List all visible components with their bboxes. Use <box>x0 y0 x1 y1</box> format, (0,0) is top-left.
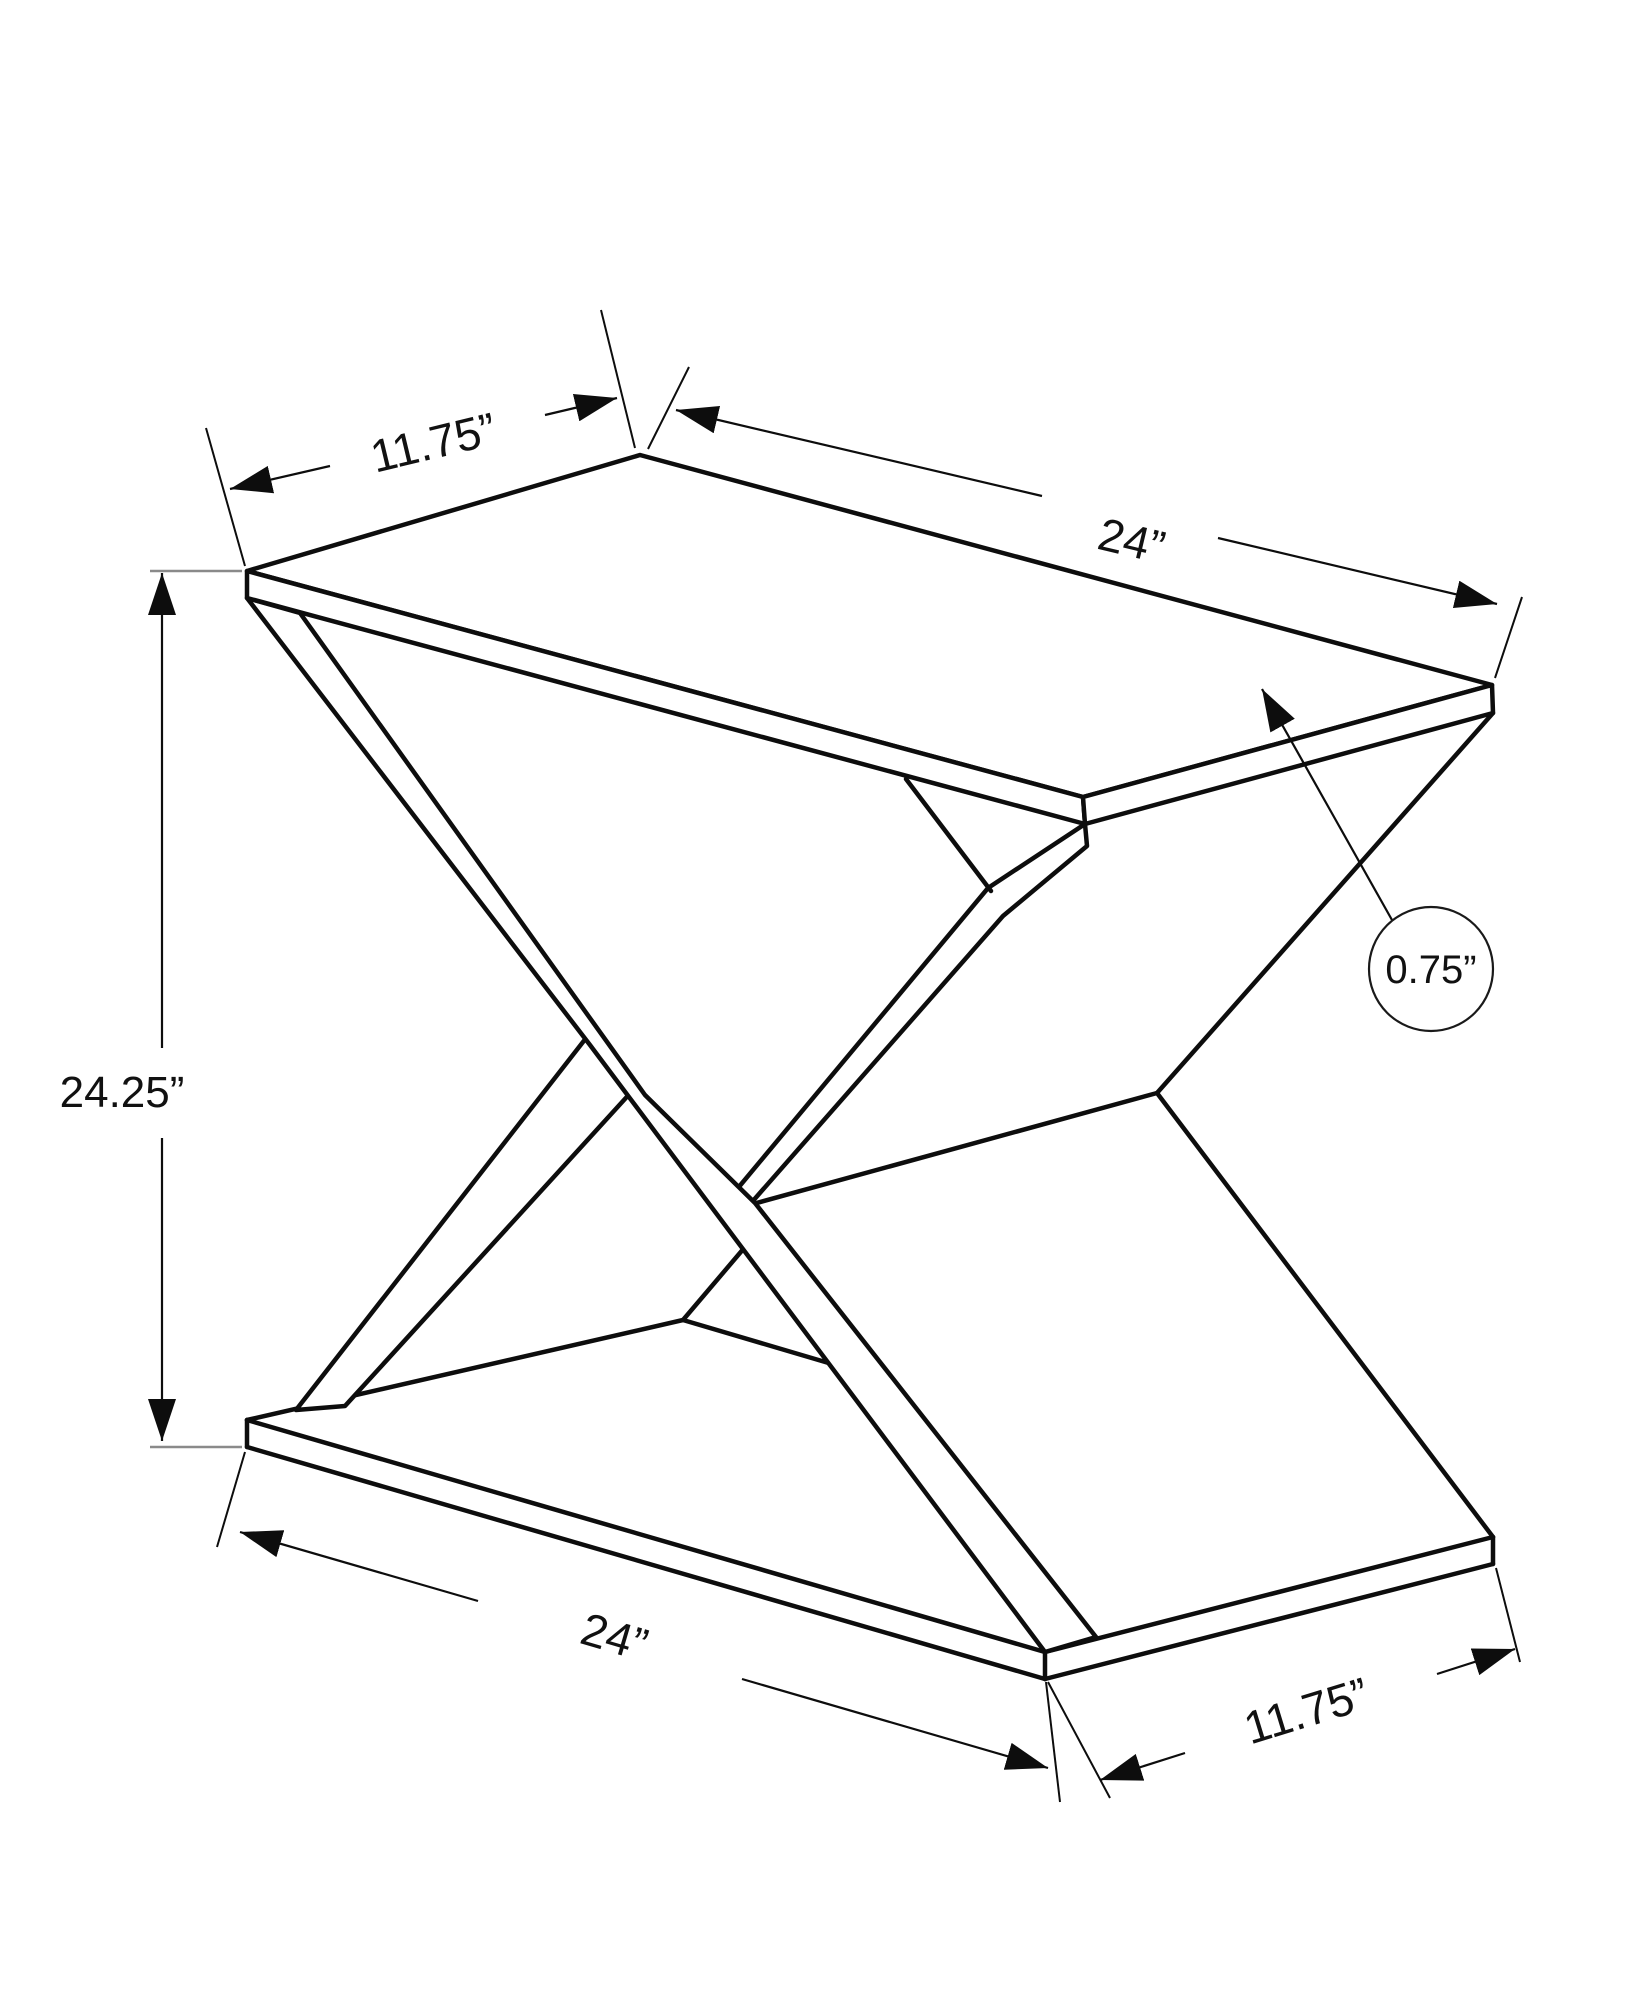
technical-drawing: 24.25” 11.75” 24” 24” 11.75” 0.75” <box>0 0 1648 2000</box>
top-depth-extension-right <box>601 310 635 448</box>
height-label: 24.25” <box>60 1068 185 1117</box>
base-front-right-top-edge <box>1045 1537 1493 1652</box>
bottom-depth-extension-right <box>1496 1568 1520 1662</box>
top-depth-label: 11.75” <box>365 402 501 482</box>
top-depth-dim-right <box>545 398 617 415</box>
base-front-right-bottom-edge <box>1045 1564 1493 1679</box>
thickness-label: 0.75” <box>1385 948 1476 992</box>
cross-leg-back <box>296 779 1087 1410</box>
back-leg-lower-arm <box>296 1033 634 1410</box>
top-width-label: 24” <box>1093 507 1170 573</box>
bottom-width-dim-right <box>742 1679 1048 1768</box>
right-panel-front-edge <box>1157 1093 1493 1537</box>
back-leg-upper-arm <box>738 824 1087 1202</box>
bottom-width-label: 24” <box>575 1602 653 1671</box>
dimension-height: 24.25” <box>60 571 242 1447</box>
bottom-depth-dim-left <box>1100 1753 1185 1780</box>
dimension-bottom-depth: 11.75” <box>1048 1568 1520 1798</box>
bottom-depth-dim-right <box>1437 1649 1515 1674</box>
top-width-extension-right <box>1495 597 1522 678</box>
bottom-width-dim-left <box>240 1532 478 1601</box>
bottom-depth-label: 11.75” <box>1238 1667 1375 1754</box>
panel-back-thickness-edge <box>683 1247 745 1320</box>
top-depth-extension-left <box>206 428 245 566</box>
drawing-canvas: 24.25” 11.75” 24” 24” 11.75” 0.75” <box>0 0 1648 2000</box>
top-width-extension-left <box>648 367 689 449</box>
top-width-dim-right <box>1218 538 1497 604</box>
top-depth-dim-left <box>230 466 330 489</box>
